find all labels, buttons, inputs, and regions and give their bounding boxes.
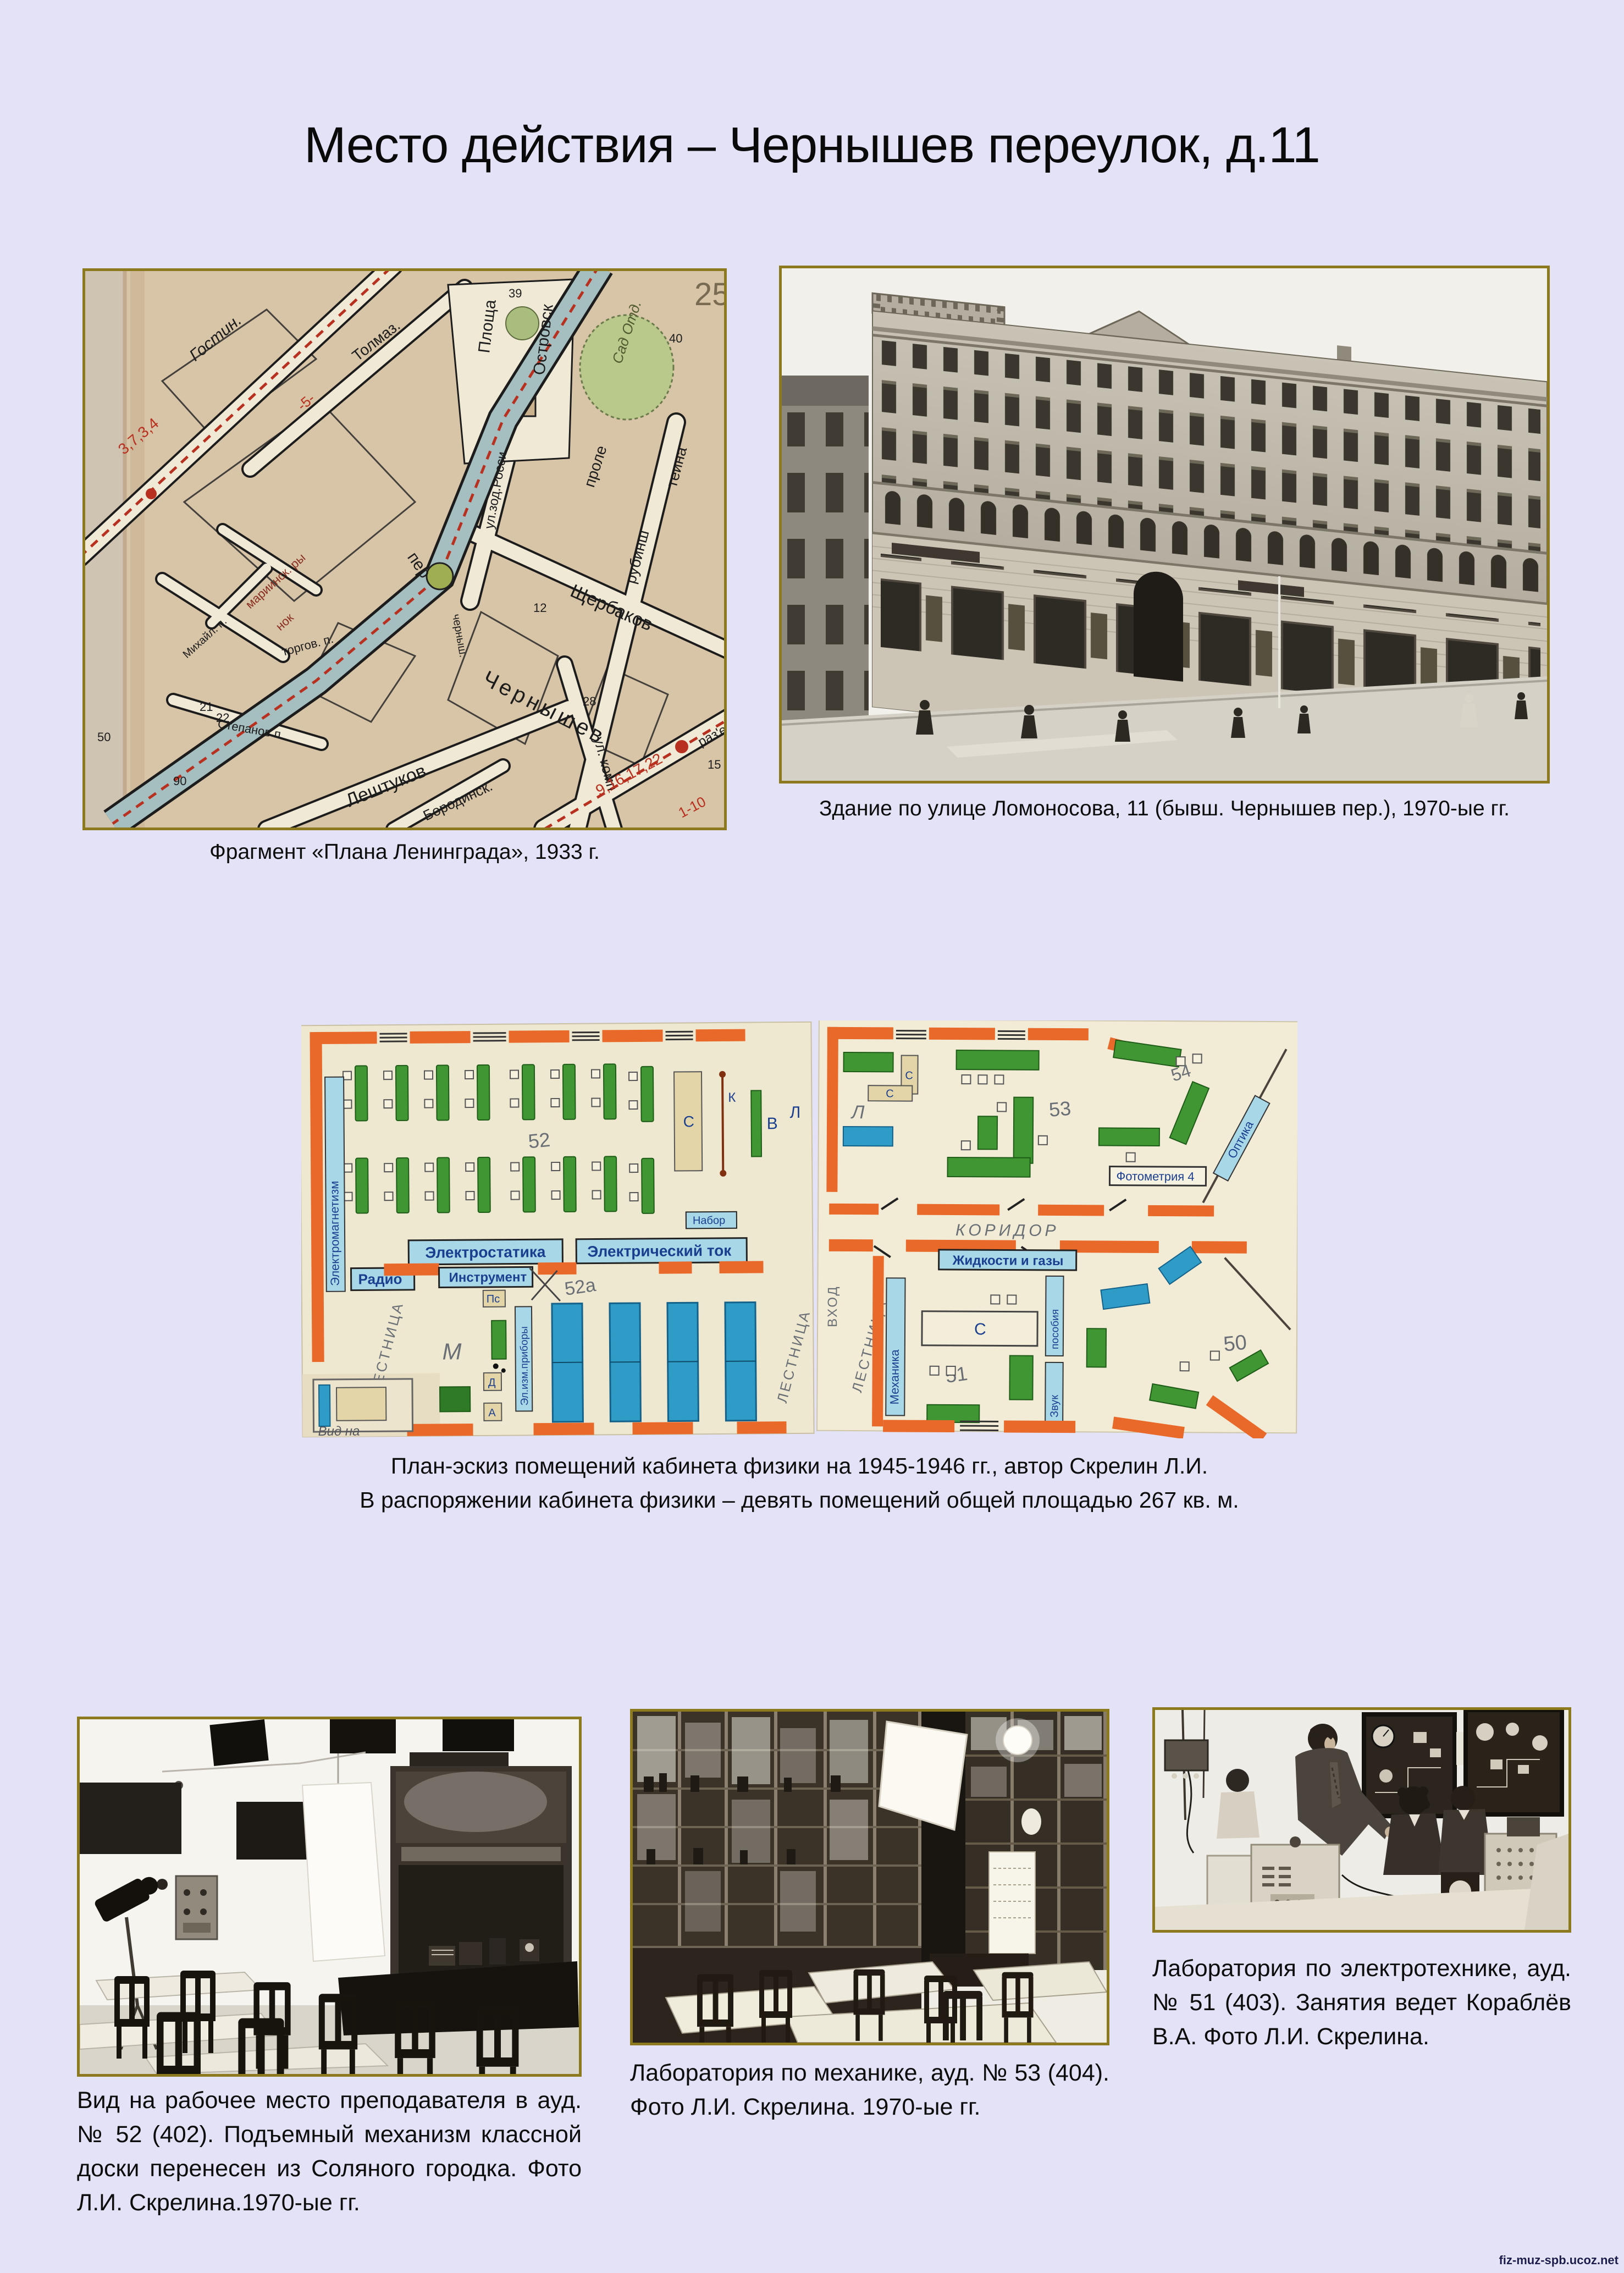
plan-room-number: 50: [1223, 1331, 1248, 1356]
map-house-number: 15: [708, 758, 721, 771]
plan-label: Механика: [887, 1349, 902, 1405]
plan-label: С: [974, 1320, 986, 1338]
plan-label: С: [905, 1070, 913, 1082]
map-house-number: 22: [216, 711, 229, 725]
building-photo-frame: [779, 266, 1550, 784]
plan-label: Пс: [487, 1293, 500, 1305]
floorplan-caption-line2: В распоряжении кабинета физики – девять …: [301, 1483, 1297, 1518]
plan-label: А: [488, 1407, 496, 1419]
plan-label: Д: [488, 1377, 496, 1389]
map-house-number: 12: [533, 601, 546, 615]
map-photo-frame: Гостин. Толмаз. Площа Островск ул.зод.Ро…: [82, 268, 727, 830]
plan-label: Инструмент: [449, 1270, 527, 1285]
classroom-photo: [80, 1719, 579, 2074]
electro-caption: Лаборатория по электротехнике, ауд. № 51…: [1152, 1952, 1571, 2054]
plan-room-number: Л: [850, 1102, 865, 1123]
plan-label: Эл.изм.приборы: [518, 1326, 531, 1405]
map-house-number: 90: [173, 774, 186, 788]
plan-label: Электромагнетизм: [327, 1181, 341, 1286]
electro-lab-photo: [1155, 1710, 1568, 1930]
plan-label: Электрический ток: [587, 1242, 732, 1260]
plan-label: Жидкости и газы: [952, 1253, 1064, 1268]
mechanics-caption: Лаборатория по механике, ауд. № 53 (404)…: [630, 2056, 1109, 2125]
mechanics-lab-photo: [633, 1712, 1107, 2043]
plan-note: Вид на: [318, 1424, 360, 1438]
classroom-caption: Вид на рабочее место преподавателя в ауд…: [77, 2084, 582, 2220]
floorplan-photo: 52 С К В Л Электромагнетизм Электростати…: [301, 1020, 1297, 1438]
map-sheet-number: 25: [694, 277, 724, 312]
plan-label: Л: [789, 1104, 800, 1122]
plan-room-number: 52: [527, 1128, 551, 1153]
map-house-number: 50: [97, 730, 111, 744]
building-photo: [782, 268, 1547, 781]
map-house-number: 28: [583, 694, 596, 708]
plan-label: С: [683, 1113, 694, 1130]
watermark: fiz-muz-spb.ucoz.net: [1499, 2253, 1619, 2268]
plan-label: К: [728, 1090, 736, 1105]
plan-letter: М: [442, 1338, 461, 1364]
plan-label: С: [886, 1088, 894, 1100]
mechanics-photo-frame: [630, 1709, 1109, 2045]
floorplan-caption: План-эскиз помещений кабинета физики на …: [301, 1449, 1297, 1517]
plan-label: Электростатика: [425, 1243, 546, 1261]
map-photo: Гостин. Толмаз. Площа Островск ул.зод.Ро…: [85, 271, 724, 827]
map-house-number: 21: [200, 700, 213, 714]
map-caption: Фрагмент «Плана Ленинграда», 1933 г.: [82, 840, 727, 864]
map-house-number: 40: [669, 332, 682, 345]
plan-room-number: 53: [1048, 1097, 1071, 1121]
plan-label: КОРИДОР: [955, 1221, 1059, 1240]
floorplan-photo-frame: 52 С К В Л Электромагнетизм Электростати…: [301, 1020, 1297, 1438]
classroom-photo-frame: [77, 1717, 582, 2077]
poster-canvas: Место действия – Чернышев переулок, д.11: [0, 0, 1624, 2273]
map-house-number: 39: [509, 286, 522, 300]
electro-photo-frame: [1152, 1707, 1571, 1933]
page-title: Место действия – Чернышев переулок, д.11: [0, 117, 1624, 174]
plan-label: Набор: [693, 1215, 725, 1227]
plan-label: Фотометрия 4: [1116, 1169, 1194, 1184]
floorplan-caption-line1: План-эскиз помещений кабинета физики на …: [301, 1449, 1297, 1483]
building-caption: Здание по улице Ломоносова, 11 (бывш. Че…: [779, 797, 1550, 821]
plan-label: Звук: [1048, 1395, 1060, 1417]
plan-label: ВХОД: [825, 1285, 840, 1327]
plan-label: В: [767, 1115, 778, 1133]
plan-label: пособия: [1049, 1309, 1061, 1349]
